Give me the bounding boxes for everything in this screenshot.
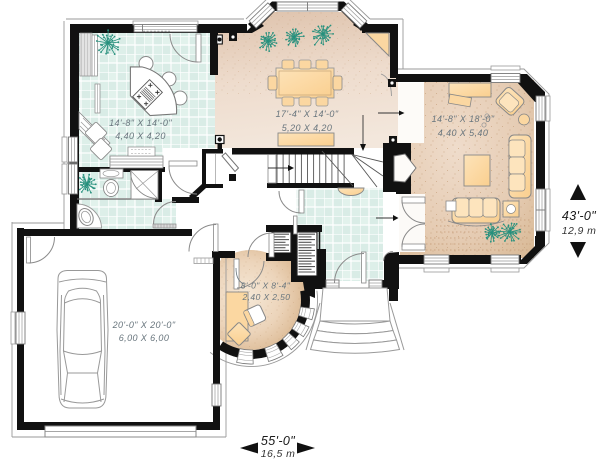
- svg-text:4,40 X 4,20: 4,40 X 4,20: [115, 131, 165, 141]
- svg-text:12,9 m: 12,9 m: [562, 225, 597, 237]
- svg-text:6,00 X 6,00: 6,00 X 6,00: [119, 333, 169, 343]
- svg-text:8'-0" X 8'-4": 8'-0" X 8'-4": [241, 281, 291, 291]
- svg-text:17'-4" X 14'-0": 17'-4" X 14'-0": [276, 109, 339, 119]
- svg-text:4,40 X 5,40: 4,40 X 5,40: [438, 128, 488, 138]
- svg-text:43'-0": 43'-0": [562, 209, 596, 223]
- svg-text:14'-8" X 18'-0": 14'-8" X 18'-0": [432, 114, 495, 124]
- svg-text:55'-0": 55'-0": [261, 434, 295, 448]
- svg-text:16,5 m: 16,5 m: [261, 448, 296, 460]
- svg-text:2,40 X 2,50: 2,40 X 2,50: [242, 292, 291, 302]
- svg-text:14'-8" X 14'-0": 14'-8" X 14'-0": [109, 118, 172, 128]
- svg-text:5,20 X 4,20: 5,20 X 4,20: [282, 123, 332, 133]
- svg-text:20'-0" X 20'-0": 20'-0" X 20'-0": [112, 320, 176, 330]
